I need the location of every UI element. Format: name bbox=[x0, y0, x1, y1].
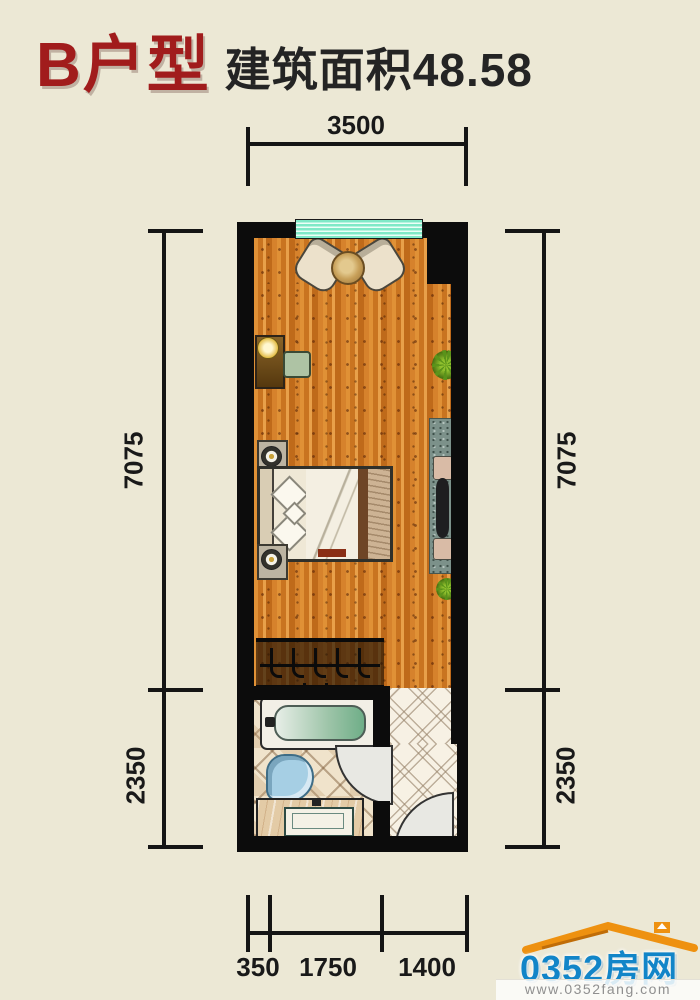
dim-tick bbox=[268, 895, 272, 952]
dim-bottom-line bbox=[246, 931, 469, 935]
hanger-icon bbox=[292, 648, 304, 678]
table-lamp-icon bbox=[261, 549, 282, 570]
hanger-icon bbox=[270, 648, 282, 678]
dim-left-lower-label: 2350 bbox=[121, 731, 152, 821]
dim-left-line bbox=[162, 230, 166, 848]
hanger-icon bbox=[336, 648, 348, 678]
unit-type-label: B户型 bbox=[36, 14, 211, 104]
dim-top-line bbox=[246, 142, 468, 146]
blanket-fold bbox=[358, 469, 368, 559]
wall-bathroom-top bbox=[247, 686, 390, 700]
flat-tv-icon bbox=[436, 478, 449, 538]
bathtub-icon bbox=[260, 696, 378, 750]
dim-top-label: 3500 bbox=[306, 110, 406, 141]
wardrobe-rail bbox=[260, 664, 380, 667]
dim-bottom-b-label: 1750 bbox=[288, 952, 368, 983]
dim-bottom-c-label: 1400 bbox=[387, 952, 467, 983]
cabinet-item bbox=[433, 538, 453, 560]
sink-icon bbox=[284, 807, 354, 837]
dim-right-lower-label: 2350 bbox=[551, 731, 582, 821]
dim-tick bbox=[148, 688, 203, 692]
dim-right-line bbox=[542, 230, 546, 848]
faucet-icon bbox=[265, 717, 275, 727]
dim-tick bbox=[505, 845, 560, 849]
built-area-label: 建筑面积48.58 bbox=[225, 34, 533, 100]
dim-tick bbox=[505, 688, 560, 692]
entry-hall-floor bbox=[390, 688, 451, 744]
dim-right-upper-label: 7075 bbox=[552, 416, 583, 506]
dim-tick bbox=[148, 845, 203, 849]
dim-tick bbox=[246, 127, 250, 186]
wall-bottom bbox=[237, 836, 468, 852]
watermark-url: www.0352fang.com bbox=[496, 979, 700, 1000]
dim-tick bbox=[246, 895, 250, 952]
page-title: B户型 建筑面积48.58 bbox=[36, 14, 533, 104]
wall-bath-entry-upper bbox=[373, 700, 390, 747]
foot-throw bbox=[368, 469, 390, 559]
sink-basin bbox=[292, 813, 344, 829]
wardrobe-icon bbox=[256, 638, 384, 688]
table-lamp-icon bbox=[261, 446, 282, 467]
blanket bbox=[306, 469, 362, 559]
window-icon bbox=[295, 219, 423, 239]
dim-tick bbox=[148, 229, 203, 233]
tub-basin bbox=[274, 705, 366, 741]
dim-tick bbox=[505, 229, 560, 233]
hanger-icon bbox=[314, 648, 326, 678]
wall-right bbox=[451, 284, 468, 744]
bed-runner bbox=[318, 549, 346, 557]
floorplan-page: B户型 建筑面积48.58 bbox=[0, 0, 700, 1000]
dim-tick bbox=[465, 895, 469, 952]
dim-tick bbox=[380, 895, 384, 952]
dim-tick bbox=[464, 127, 468, 186]
hanger-icon bbox=[358, 648, 370, 678]
wall-right-upper bbox=[427, 222, 468, 284]
lamp-icon bbox=[257, 337, 279, 359]
cabinet-item bbox=[433, 456, 453, 480]
dim-bottom-a-label: 350 bbox=[218, 952, 298, 983]
wall-left bbox=[237, 222, 254, 852]
side-table-icon bbox=[331, 251, 365, 285]
dim-left-upper-label: 7075 bbox=[119, 416, 150, 506]
wall-bath-entry-lower bbox=[373, 801, 390, 836]
tv-icon bbox=[283, 351, 311, 378]
faucet-icon bbox=[312, 800, 321, 806]
